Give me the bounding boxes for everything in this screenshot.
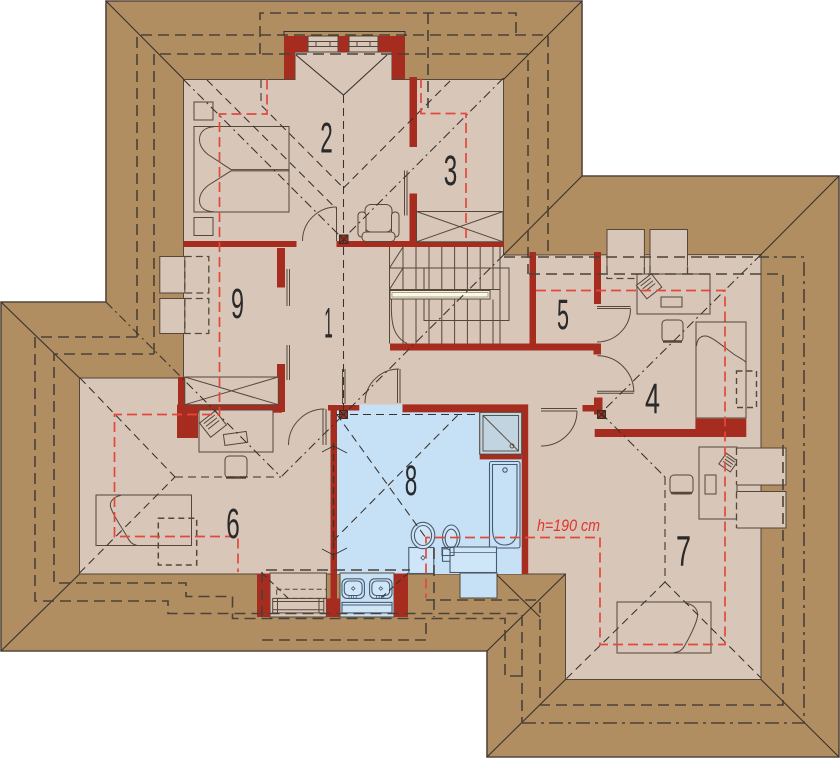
svg-text:4: 4 xyxy=(645,375,660,423)
svg-text:2: 2 xyxy=(320,115,333,163)
svg-text:9: 9 xyxy=(231,280,244,328)
svg-text:3: 3 xyxy=(444,147,458,195)
svg-text:h=190 cm: h=190 cm xyxy=(537,516,600,535)
svg-text:1: 1 xyxy=(324,300,333,348)
svg-text:6: 6 xyxy=(226,500,240,548)
svg-text:7: 7 xyxy=(676,528,691,576)
svg-text:8: 8 xyxy=(405,457,418,505)
svg-text:5: 5 xyxy=(557,291,569,339)
